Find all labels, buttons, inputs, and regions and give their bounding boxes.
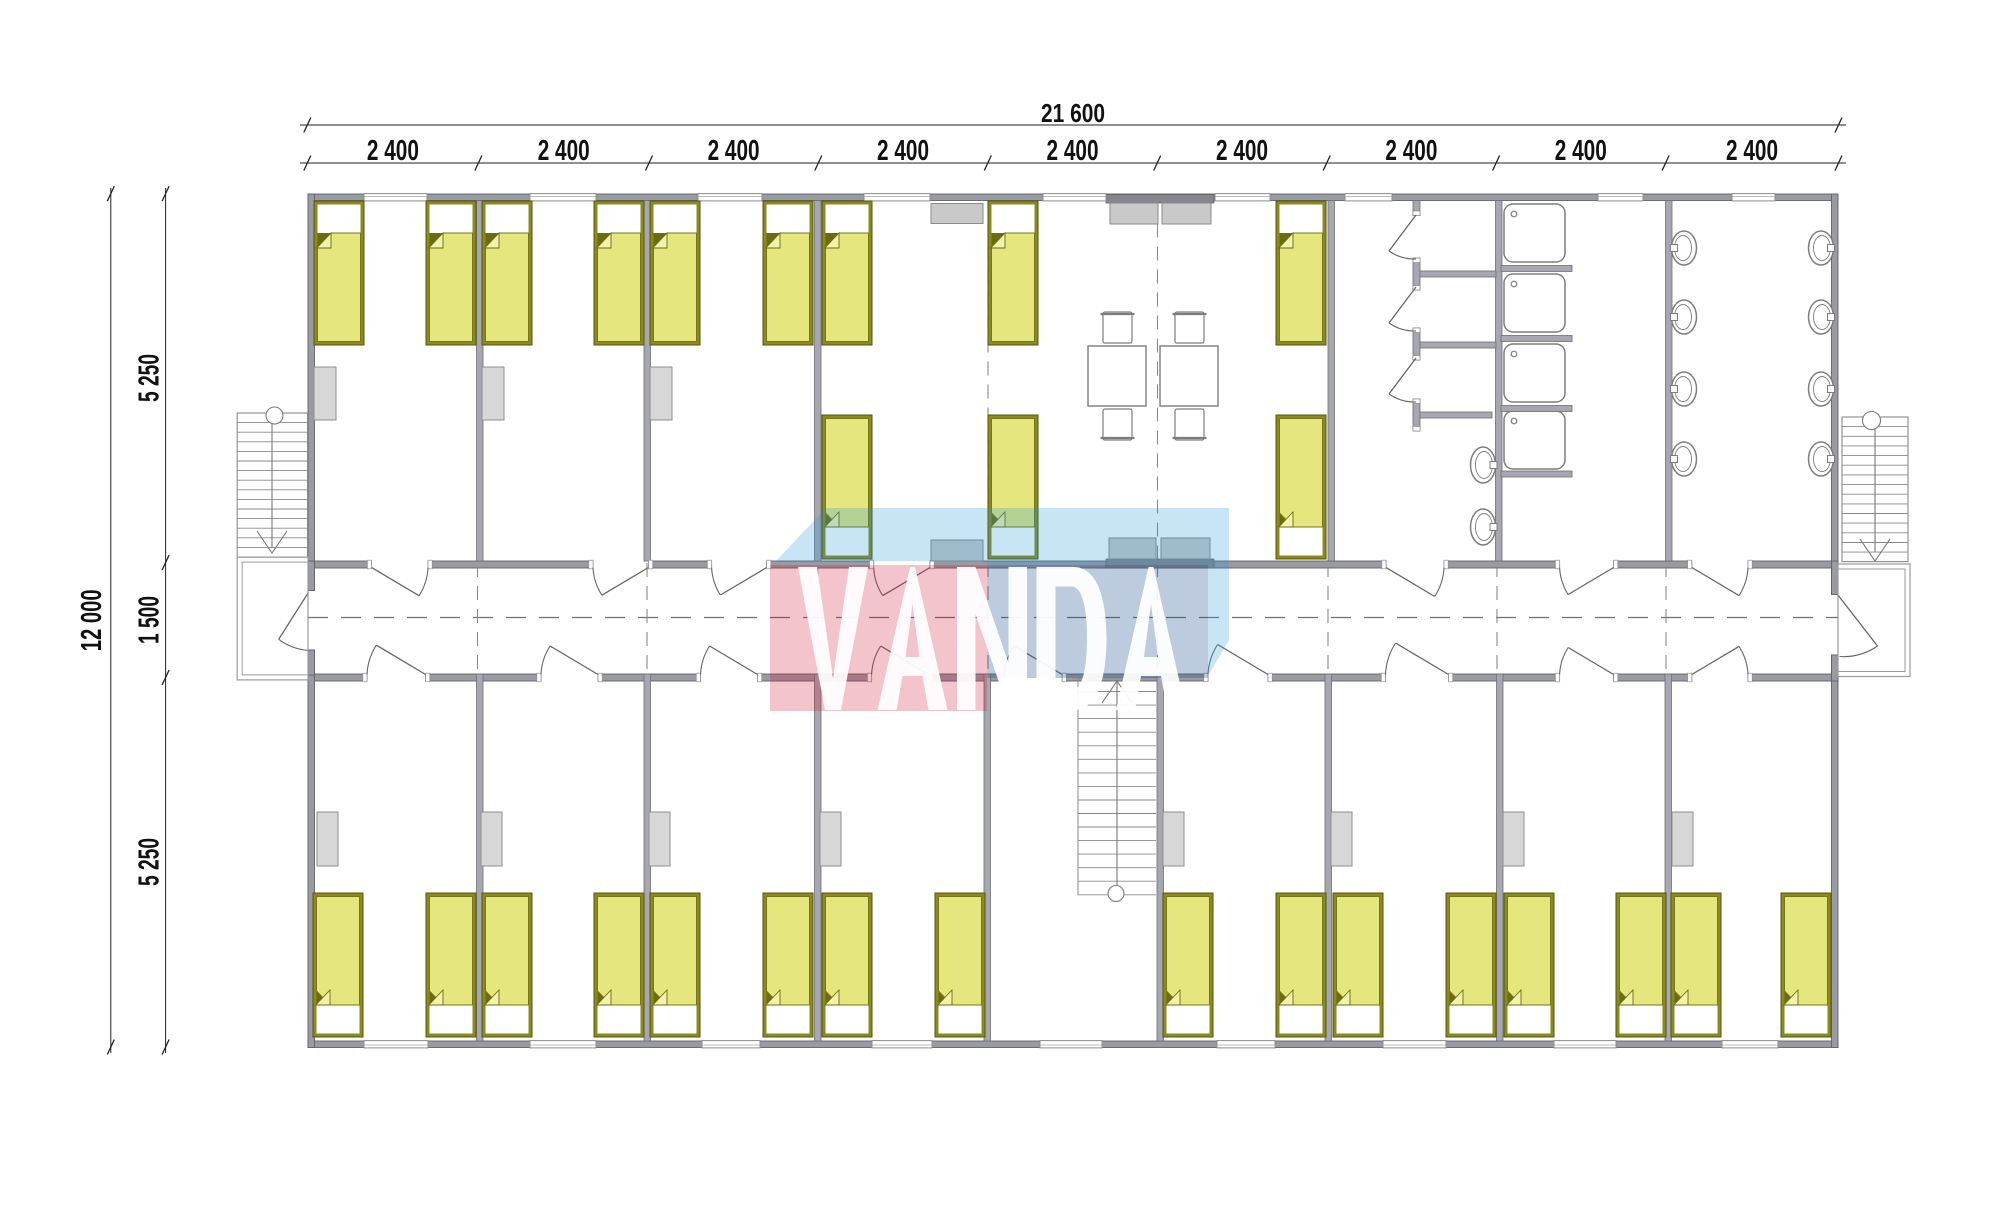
svg-text:2 400: 2 400 [1047, 135, 1099, 167]
svg-text:2 400: 2 400 [1385, 135, 1437, 167]
svg-text:5 250: 5 250 [134, 838, 166, 886]
svg-text:2 400: 2 400 [1555, 135, 1607, 167]
svg-text:2 400: 2 400 [538, 135, 590, 167]
svg-text:2 400: 2 400 [877, 135, 929, 167]
svg-text:2 400: 2 400 [367, 135, 419, 167]
svg-text:12 000: 12 000 [76, 589, 108, 651]
svg-text:1 500: 1 500 [134, 596, 166, 644]
svg-text:2 400: 2 400 [1216, 135, 1268, 167]
svg-text:5 250: 5 250 [134, 354, 166, 402]
svg-text:21 600: 21 600 [1041, 98, 1105, 128]
svg-text:2 400: 2 400 [708, 135, 760, 167]
svg-text:2 400: 2 400 [1726, 135, 1778, 167]
